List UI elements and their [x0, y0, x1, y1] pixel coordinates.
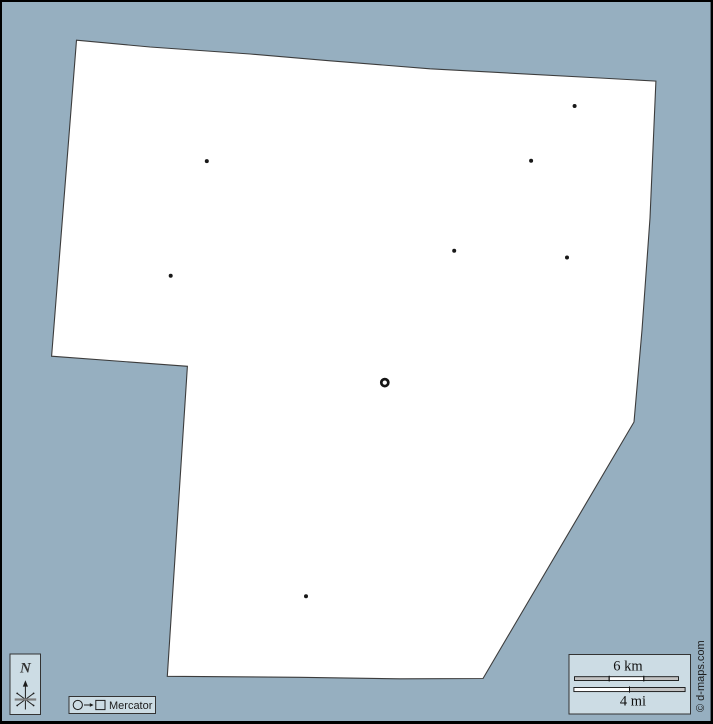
svg-text:© d-maps.com: © d-maps.com [695, 640, 707, 712]
svg-text:4 mi: 4 mi [620, 694, 646, 710]
svg-text:Mercator: Mercator [109, 700, 153, 712]
svg-text:6 km: 6 km [613, 659, 643, 675]
svg-text:N: N [19, 661, 32, 677]
